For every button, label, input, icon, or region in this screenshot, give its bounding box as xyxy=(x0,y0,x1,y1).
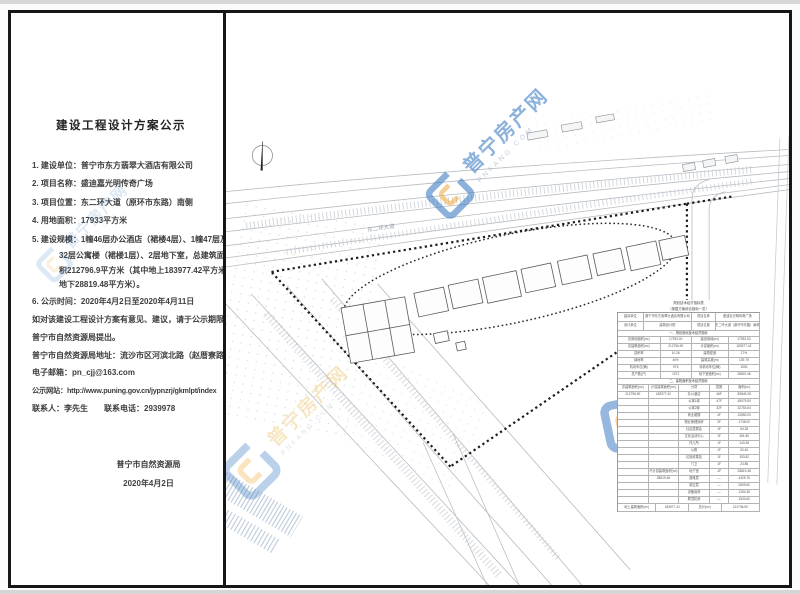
table-cell: 46F xyxy=(710,392,730,399)
table-cell: 项目位置 xyxy=(692,322,716,331)
table-cell: 4F xyxy=(710,413,730,420)
table-cell: 1F xyxy=(710,448,730,455)
north-arrow-icon xyxy=(252,141,272,170)
table-cell xyxy=(649,427,680,434)
table-row: 地上建筑面积(m²)183977.42总计(m²)212796.90 xyxy=(618,504,760,512)
notice-line: 积212796.9平方米（其中地上183977.42平方米， xyxy=(24,264,223,279)
table-cell: 总建筑面积(m²) xyxy=(618,344,661,351)
page-frame: 普宁房产网 PNFANG.COM 建设工程设计方案公示 1. 建设单位：普宁市东… xyxy=(8,10,792,588)
table-cell xyxy=(618,434,649,441)
table-cell: 183977.42 xyxy=(729,344,760,351)
table-row: 社区居委会1F54.28 xyxy=(618,427,760,434)
table-row: 垃圾收集站1F153.82 xyxy=(618,455,760,462)
table-row: 商业裙楼4F10550.00 xyxy=(618,413,760,420)
table-cell: 垃圾收集站 xyxy=(679,455,710,462)
table-cell: 183977.42 xyxy=(656,504,689,512)
table-cell: 47F xyxy=(710,399,730,406)
page-title: 建设工程设计方案公示 xyxy=(56,117,223,133)
table-cell: 公厕 xyxy=(679,448,710,455)
table-row: 212796.90183977.42办公酒店46F89849.28 xyxy=(618,392,760,399)
notice-body: 1. 建设单位：普宁市东方翡翠大酒店有限公司2. 项目名称：盛迪嘉光明传奇广场3… xyxy=(24,157,223,417)
table-cell: 143.36 xyxy=(729,441,760,448)
table-cell: 1F xyxy=(710,441,730,448)
table-cell: 17933.00 xyxy=(661,337,692,344)
table-cell xyxy=(618,490,649,497)
table-row: 设备用房—1254.35 xyxy=(618,490,760,497)
table-cell: 10550.00 xyxy=(729,413,760,420)
table-cell: 机动车位(辆) xyxy=(618,365,661,372)
table-cell xyxy=(649,420,680,427)
table-cell: 45075.50 xyxy=(729,399,760,406)
table-cell xyxy=(649,413,680,420)
table-cell xyxy=(649,448,680,455)
indicators-table-rows: 建设单位普宁市东方翡翠大酒店有限公司项目名称盛迪嘉光明传奇广场设计单位建筑设计院… xyxy=(617,312,760,512)
table-cell: — xyxy=(710,497,730,504)
table-row: 屋顶机房—1533.60 xyxy=(618,497,760,504)
table-cell xyxy=(618,406,649,413)
table-cell: 32F xyxy=(710,406,730,413)
table-cell: 40% xyxy=(661,358,692,365)
table-cell xyxy=(649,441,680,448)
table-cell: 2809.60 xyxy=(729,483,760,490)
table-cell: 文化活动中心 xyxy=(679,434,710,441)
indicators-table: 规划技术经济指标表 （报建方案综合指标一览） 建设单位普宁市东方翡翠大酒店有限公… xyxy=(617,300,760,512)
table-row: 设计单位建筑设计院项目位置东二环大道（原环市东路）南侧 xyxy=(618,322,760,331)
table-cell xyxy=(618,427,649,434)
table-cell: 建筑密度 xyxy=(692,351,729,358)
table-cell: 办公酒店 xyxy=(679,392,710,399)
table-cell xyxy=(618,413,649,420)
table-cell: 212796.90 xyxy=(722,504,760,512)
table-cell: 容积率 xyxy=(618,351,661,358)
table-cell: 社区居委会 xyxy=(679,427,710,434)
table-cell xyxy=(649,399,680,406)
table-cell: 4425.76 xyxy=(729,476,760,483)
notice-line: 4. 用地面积：17933平方米 xyxy=(24,212,223,230)
table-cell: 避难层 xyxy=(679,476,710,483)
table-row: 文化活动中心1F451.80 xyxy=(618,434,760,441)
table-cell: 976 xyxy=(661,365,692,372)
table-cell xyxy=(649,434,680,441)
table-cell xyxy=(649,462,680,469)
table-cell xyxy=(649,455,680,462)
notice-line: 普宁市自然资源局提出。 xyxy=(24,329,223,347)
table-cell: 公寓2幢 xyxy=(679,406,710,413)
table-cell: 地下室面积(m²) xyxy=(692,372,729,379)
table-cell: 总户数(户) xyxy=(618,372,661,379)
table-cell xyxy=(618,455,649,462)
scan-edge-bottom xyxy=(0,590,800,594)
table-cell: 1072 xyxy=(661,372,692,379)
table-cell: 1F xyxy=(710,434,730,441)
table-cell: 1738.00 xyxy=(729,420,760,427)
table-cell: 非机动车位(辆) xyxy=(692,365,729,372)
table-row: 绿地率40%建筑高度(m)139.75 xyxy=(618,358,760,365)
notice-line: 公示网站：http://www.puning.gov.cn/jypnzrj/gk… xyxy=(24,382,223,400)
table-cell: 门卫 xyxy=(679,462,710,469)
table-cell: 公寓1幢 xyxy=(679,399,710,406)
table-cell xyxy=(618,448,649,455)
table-cell: 普宁市东方翡翠大酒店有限公司 xyxy=(644,313,692,322)
notice-line: 如对该建设工程设计方案有意见、建议，请于公示期限内向 xyxy=(24,311,223,329)
table-cell: 设备用房 xyxy=(679,490,710,497)
table-cell: 153.82 xyxy=(729,455,760,462)
table-cell: 分项 xyxy=(679,385,710,392)
table-cell: 10.26 xyxy=(661,351,692,358)
table-cell: 建设单位 xyxy=(618,313,644,322)
table-cell: 52.40 xyxy=(729,448,760,455)
bottom-left-hatch xyxy=(226,483,297,547)
table-row: 容积率10.26建筑密度27% xyxy=(618,351,760,358)
table-cell: 1F xyxy=(710,427,730,434)
table-cell: 1254.35 xyxy=(729,490,760,497)
table-cell: 总建筑面积(m²) xyxy=(618,385,649,392)
table-cell: 计容建筑面积(m²) xyxy=(649,385,680,392)
table-cell: 28819.48 xyxy=(729,469,760,476)
right-edge-road xyxy=(768,135,789,484)
table-cell: 架空层 xyxy=(679,483,710,490)
table-cell: 1530 xyxy=(729,365,760,372)
table-cell: 54.28 xyxy=(729,427,760,434)
table-row: 公厕1F52.40 xyxy=(618,448,760,455)
notice-panel: 普宁房产网 PNFANG.COM 建设工程设计方案公示 1. 建设单位：普宁市东… xyxy=(11,13,226,585)
site-plan-panel: 东二环大道 普宁房产网 PNFANG.COM xyxy=(226,13,789,585)
notice-line: 3. 项目位置：东二环大道（原环市东路）南侧 xyxy=(24,194,223,212)
notice-line: 5. 建设规模：1幢46层办公酒店（裙楼4层）、1幢47层及1幢 xyxy=(24,231,223,249)
notice-line: 1. 建设单位：普宁市东方翡翠大酒店有限公司 xyxy=(24,157,223,175)
table-cell: 盛迪嘉光明传奇广场 xyxy=(716,313,760,322)
table-row: 托儿所1F143.36 xyxy=(618,441,760,448)
table-cell: 设计单位 xyxy=(618,322,644,331)
table-cell: -2F xyxy=(710,469,730,476)
table-cell xyxy=(649,490,680,497)
notice-line: 电子邮箱：pn_cjj@163.com xyxy=(24,364,223,382)
table-cell xyxy=(618,441,649,448)
table-cell: 183977.42 xyxy=(649,392,680,399)
signature-org: 普宁市自然资源局 xyxy=(24,458,223,472)
table-cell: 不计容建筑面积(m²) xyxy=(649,469,680,476)
table-cell: 项目名称 xyxy=(692,313,716,322)
table-cell: 地下室 xyxy=(679,469,710,476)
table-row: 总户数(户)1072地下室面积(m²)28819.48 xyxy=(618,372,760,379)
signature-date: 2020年4月2日 xyxy=(24,472,223,496)
table-cell: 建筑高度(m) xyxy=(692,358,729,365)
table-row: 总建筑面积(m²)212796.90计容面积(m²)183977.42 xyxy=(618,344,760,351)
table-cell: 面积(m²) xyxy=(729,385,760,392)
table-cell: 212796.90 xyxy=(661,344,692,351)
table-cell xyxy=(618,399,649,406)
table-cell xyxy=(649,497,680,504)
notice-line: 6. 公示时间：2020年4月2日至2020年4月11日 xyxy=(24,293,223,311)
table-cell xyxy=(649,406,680,413)
table-cell xyxy=(649,483,680,490)
table-cell: 139.75 xyxy=(729,358,760,365)
table-cell: 1533.60 xyxy=(729,497,760,504)
table-cell: 东二环大道（原环市东路）南侧 xyxy=(716,322,760,331)
table-cell: 451.80 xyxy=(729,434,760,441)
table-cell: 托儿所 xyxy=(679,441,710,448)
table-cell: 2F xyxy=(710,420,730,427)
notice-line: 32层公寓楼（裙楼1层）、2层地下室，总建筑面 xyxy=(24,249,223,264)
scan-edge-top xyxy=(0,0,800,4)
table-cell xyxy=(618,476,649,483)
table-cell xyxy=(618,497,649,504)
table-row: 架空层—2809.60 xyxy=(618,483,760,490)
table-cell: 建筑设计院 xyxy=(644,322,692,331)
table-cell: 总计(m²) xyxy=(689,504,722,512)
table-cell: 28819.48 xyxy=(649,476,680,483)
table-row: 不计容建筑面积(m²)地下室-2F28819.48 xyxy=(618,469,760,476)
table-cell: 层数 xyxy=(710,385,730,392)
table-row: 机动车位(辆)976非机动车位(辆)1530 xyxy=(618,365,760,372)
table-cell: — xyxy=(710,476,730,483)
table-row: 总用地面积(m²)17933.00建设用地(m²)17933.00 xyxy=(618,337,760,344)
table-cell: 计容面积(m²) xyxy=(692,344,729,351)
table-cell xyxy=(618,462,649,469)
table-cell: 24.86 xyxy=(729,462,760,469)
table-cell: 89849.28 xyxy=(729,392,760,399)
notice-line: 地下28819.48平方米）。 xyxy=(24,278,223,293)
table-row: 公寓1幢47F45075.50 xyxy=(618,399,760,406)
table-row: 28819.48避难层—4425.76 xyxy=(618,476,760,483)
table-cell: 1F xyxy=(710,462,730,469)
table-cell xyxy=(618,420,649,427)
table-row: 公寓2幢32F32753.64 xyxy=(618,406,760,413)
table-cell: 总用地面积(m²) xyxy=(618,337,661,344)
table-row: 物业管理用房2F1738.00 xyxy=(618,420,760,427)
notice-line: 联系人：李先生 联系电话：2939978 xyxy=(24,400,223,418)
table-cell xyxy=(618,483,649,490)
table-cell: 地上建筑面积(m²) xyxy=(618,504,656,512)
table-row: 建设单位普宁市东方翡翠大酒店有限公司项目名称盛迪嘉光明传奇广场 xyxy=(618,313,760,322)
table-cell: 物业管理用房 xyxy=(679,420,710,427)
podium-building xyxy=(341,297,415,363)
table-cell: 27% xyxy=(729,351,760,358)
table-row: 总建筑面积(m²)计容建筑面积(m²)分项层数面积(m²) xyxy=(618,385,760,392)
table-cell: — xyxy=(710,490,730,497)
table-cell: 17933.00 xyxy=(729,337,760,344)
table-cell: 1F xyxy=(710,455,730,462)
table-cell: 屋顶机房 xyxy=(679,497,710,504)
table-row: 门卫1F24.86 xyxy=(618,462,760,469)
table-cell: 绿地率 xyxy=(618,358,661,365)
table-cell: — xyxy=(710,483,730,490)
table-cell: 28819.48 xyxy=(729,372,760,379)
table-cell: 32753.64 xyxy=(729,406,760,413)
notice-line: 普宁市自然资源局地址：流沙市区河滨北路（赵厝寮路段） xyxy=(24,347,223,365)
table-cell xyxy=(618,469,649,476)
table-cell: 212796.90 xyxy=(618,392,649,399)
table-cell: 建设用地(m²) xyxy=(692,337,729,344)
table-cell: 商业裙楼 xyxy=(679,413,710,420)
notice-line: 2. 项目名称：盛迪嘉光明传奇广场 xyxy=(24,175,223,193)
